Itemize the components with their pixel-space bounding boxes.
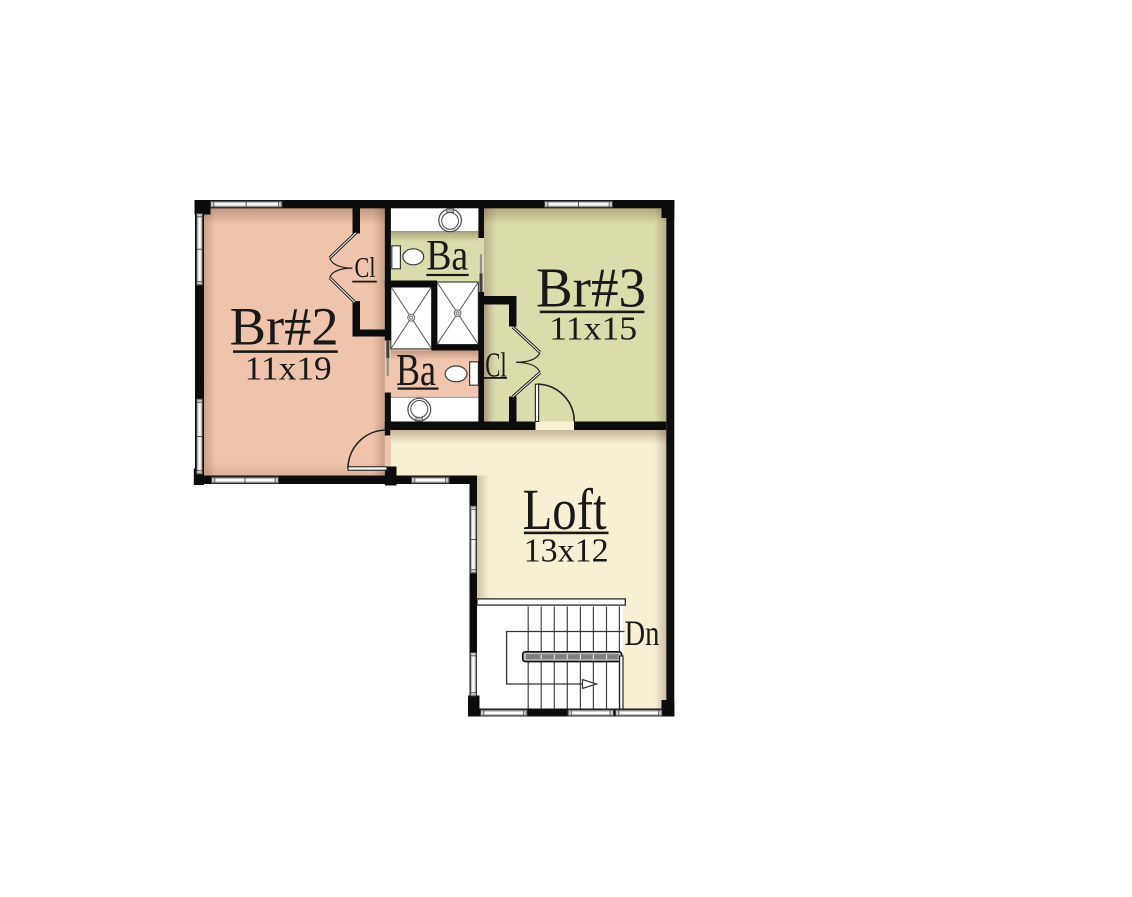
svg-text:Ba: Ba <box>426 233 468 280</box>
svg-text:11x19: 11x19 <box>245 350 332 387</box>
svg-text:Cl: Cl <box>355 252 376 284</box>
svg-text:Dn: Dn <box>625 613 660 653</box>
svg-text:11x15: 11x15 <box>549 311 637 348</box>
svg-text:Br#2: Br#2 <box>230 296 339 356</box>
svg-text:13x12: 13x12 <box>524 533 609 570</box>
